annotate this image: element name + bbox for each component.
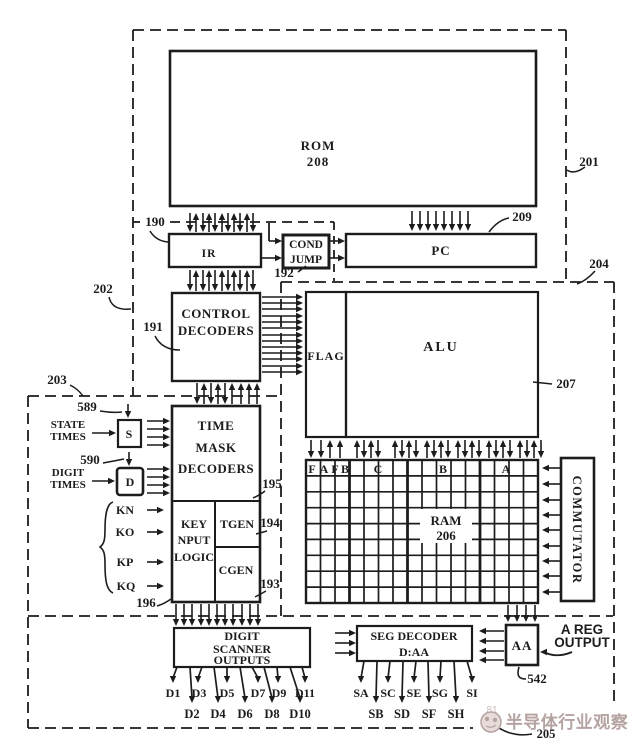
- svg-text:542: 542: [527, 671, 547, 686]
- svg-text:STATE: STATE: [51, 419, 85, 431]
- svg-text:SF: SF: [422, 707, 437, 721]
- svg-text:B: B: [439, 462, 447, 476]
- svg-text:MASK: MASK: [196, 440, 237, 455]
- svg-text:CONTROL: CONTROL: [181, 306, 250, 321]
- svg-text:F: F: [308, 462, 315, 476]
- svg-text:192: 192: [274, 265, 294, 280]
- svg-text:195: 195: [262, 476, 282, 491]
- svg-text:OUTPUTS: OUTPUTS: [214, 653, 271, 667]
- svg-text:TGEN: TGEN: [220, 517, 254, 531]
- svg-text:206: 206: [436, 528, 456, 543]
- svg-text:B: B: [341, 462, 349, 476]
- svg-text:204: 204: [589, 256, 609, 271]
- svg-text:F: F: [331, 462, 338, 476]
- svg-text:SB: SB: [368, 707, 383, 721]
- svg-text:SA: SA: [353, 686, 369, 700]
- svg-text:589: 589: [77, 399, 97, 414]
- svg-text:D1: D1: [166, 686, 181, 700]
- svg-text:SH: SH: [448, 707, 465, 721]
- svg-text:KN: KN: [116, 503, 134, 517]
- svg-text:D6: D6: [237, 707, 252, 721]
- svg-text:IR: IR: [202, 248, 217, 260]
- svg-text:KEY: KEY: [181, 517, 207, 531]
- svg-text:DECODERS: DECODERS: [178, 323, 254, 338]
- svg-text:COND: COND: [289, 239, 323, 251]
- svg-text:SD: SD: [394, 707, 410, 721]
- svg-text:D7: D7: [251, 686, 266, 700]
- svg-text:D:AA: D:AA: [399, 645, 429, 659]
- svg-text:DIGIT: DIGIT: [52, 467, 85, 479]
- svg-text:SI: SI: [466, 686, 478, 700]
- svg-text:TIMES: TIMES: [50, 479, 85, 491]
- svg-text:CGEN: CGEN: [219, 563, 254, 577]
- svg-text:TIME: TIME: [198, 418, 235, 433]
- svg-text:SEG DECODER: SEG DECODER: [370, 629, 457, 643]
- svg-text:191: 191: [143, 319, 163, 334]
- svg-text:SE: SE: [407, 686, 422, 700]
- svg-text:193: 193: [260, 576, 280, 591]
- svg-text:D9: D9: [272, 686, 287, 700]
- svg-text:D8: D8: [264, 707, 279, 721]
- svg-text:FLAG: FLAG: [307, 349, 344, 363]
- svg-text:KP: KP: [117, 555, 134, 569]
- svg-text:S: S: [126, 427, 133, 441]
- svg-text:C: C: [374, 462, 383, 476]
- svg-text:NPUT: NPUT: [178, 533, 211, 547]
- svg-text:D10: D10: [289, 707, 311, 721]
- svg-text:D11: D11: [295, 686, 315, 700]
- svg-text:KQ: KQ: [117, 579, 136, 593]
- svg-text:190: 190: [145, 214, 165, 229]
- svg-text:DECODERS: DECODERS: [178, 461, 254, 476]
- svg-text:JUMP: JUMP: [290, 254, 322, 266]
- svg-text:194: 194: [260, 515, 280, 530]
- svg-text:209: 209: [512, 209, 532, 224]
- svg-text:ROM: ROM: [301, 138, 336, 153]
- svg-text:A: A: [502, 462, 511, 476]
- svg-text:208: 208: [307, 154, 330, 169]
- svg-text:LOGIC: LOGIC: [174, 550, 214, 564]
- svg-text:207: 207: [556, 376, 576, 391]
- svg-text:D5: D5: [220, 686, 235, 700]
- svg-text:D3: D3: [192, 686, 207, 700]
- svg-text:D2: D2: [184, 707, 199, 721]
- svg-text:SC: SC: [380, 686, 395, 700]
- svg-text:202: 202: [93, 281, 113, 296]
- svg-text:201: 201: [579, 154, 599, 169]
- svg-text:COMMUTATOR: COMMUTATOR: [570, 476, 584, 585]
- svg-text:203: 203: [47, 372, 67, 387]
- svg-text:DIGIT: DIGIT: [224, 629, 259, 643]
- svg-text:590: 590: [80, 452, 100, 467]
- svg-text:OUTPUT: OUTPUT: [554, 635, 610, 650]
- svg-text:D: D: [126, 475, 135, 489]
- svg-text:RAM: RAM: [430, 513, 461, 528]
- svg-text:D4: D4: [210, 707, 226, 721]
- svg-text:SG: SG: [432, 686, 448, 700]
- svg-text:TIMES: TIMES: [50, 431, 85, 443]
- svg-text:A: A: [320, 462, 329, 476]
- svg-text:半导体行业观察: 半导体行业观察: [506, 712, 629, 732]
- svg-text:196: 196: [136, 595, 156, 610]
- svg-text:AA: AA: [512, 638, 533, 653]
- svg-text:PC: PC: [431, 243, 450, 258]
- svg-text:ALU: ALU: [423, 340, 459, 355]
- svg-text:KO: KO: [116, 525, 135, 539]
